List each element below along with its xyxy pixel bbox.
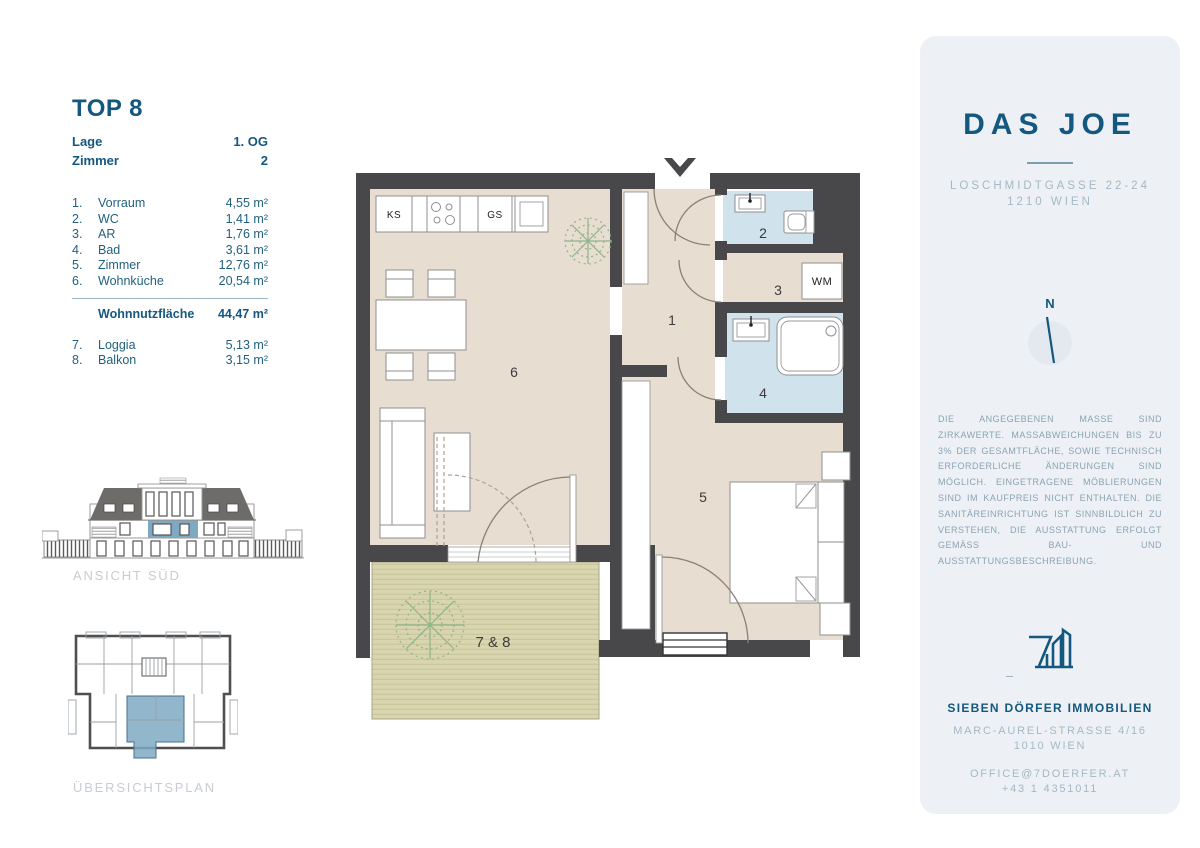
compass-needle-icon xyxy=(1020,309,1080,371)
room-row: 8. Balkon 3,15 m² xyxy=(72,353,268,369)
title-divider xyxy=(1027,162,1073,164)
room-label-zimmer: 5 xyxy=(699,489,707,505)
room-no: 1. xyxy=(72,196,98,212)
logo-dash xyxy=(1006,676,1013,677)
room-name: Loggia xyxy=(98,338,226,354)
coffee-table xyxy=(434,433,470,511)
room-name: Zimmer xyxy=(98,258,219,274)
room-name: Wohnküche xyxy=(98,274,219,290)
cooktop xyxy=(427,196,460,232)
dishwasher-label: GS xyxy=(487,210,502,221)
room-row: 7. Loggia 5,13 m² xyxy=(72,338,268,354)
meta-zimmer-value: 2 xyxy=(261,151,268,170)
terrace-label: 7 & 8 xyxy=(475,634,510,651)
room-row: 3. AR 1,76 m² xyxy=(72,227,268,243)
room-row: 6. Wohnküche 20,54 m² xyxy=(72,274,268,290)
pocket-door-lower xyxy=(622,381,650,629)
fridge-label: KS xyxy=(387,210,401,221)
room-area: 3,61 m² xyxy=(226,243,268,259)
room-area: 12,76 m² xyxy=(219,258,268,274)
company-email: OFFICE@7DOERFER.AT xyxy=(920,767,1180,782)
project-address-line2: 1210 WIEN xyxy=(920,194,1180,210)
total-row: Wohnnutzfläche 44,47 m² xyxy=(72,306,268,323)
company-address-line2: 1010 WIEN xyxy=(920,739,1180,754)
room-label-ar: 3 xyxy=(774,282,782,298)
overview-drawing xyxy=(68,630,238,772)
company-address-line1: MARC-AUREL-STRASSE 4/16 xyxy=(920,724,1180,739)
room-area: 3,15 m² xyxy=(226,353,268,369)
room-area: 1,41 m² xyxy=(226,212,268,228)
room-name: Vorraum xyxy=(98,196,226,212)
room-no: 8. xyxy=(72,353,98,369)
outdoor-list: 7. Loggia 5,13 m² 8. Balkon 3,15 m² xyxy=(72,338,268,369)
elevation-left-wing xyxy=(44,540,90,557)
brochure-page: TOP 8 Lage 1. OG Zimmer 2 1. Vorraum 4,5… xyxy=(0,0,1200,848)
list-divider xyxy=(72,298,268,299)
total-label: Wohnnutzfläche xyxy=(98,306,218,323)
project-title: DAS JOE xyxy=(920,108,1180,142)
total-value: 44,47 m² xyxy=(218,306,268,323)
wardrobe xyxy=(820,603,850,635)
pocket-door-upper xyxy=(624,192,648,284)
room-name: Bad xyxy=(98,243,226,259)
room-row: 5. Zimmer 12,76 m² xyxy=(72,258,268,274)
company-logo xyxy=(920,622,1180,672)
room-area: 20,54 m² xyxy=(219,274,268,290)
unit-info: TOP 8 Lage 1. OG Zimmer 2 1. Vorraum 4,5… xyxy=(72,96,268,369)
seven-doerfer-logo-icon xyxy=(1023,624,1077,670)
sofa xyxy=(380,408,425,538)
room-label-wc: 2 xyxy=(759,225,767,241)
room-label-wohnkueche: 6 xyxy=(510,364,518,380)
disclaimer-text: DIE ANGEGEBENEN MASSE SIND ZIRKAWERTE. M… xyxy=(938,412,1162,570)
project-address: LOSCHMIDTGASSE 22-24 1210 WIEN xyxy=(920,178,1180,210)
elevation-right-wing xyxy=(254,540,302,557)
project-address-line1: LOSCHMIDTGASSE 22-24 xyxy=(920,178,1180,194)
room-name: Balkon xyxy=(98,353,226,369)
wardrobe xyxy=(822,452,850,480)
company-contact: OFFICE@7DOERFER.AT +43 1 4351011 xyxy=(920,767,1180,797)
room-label-bad: 4 xyxy=(759,385,767,401)
meta-zimmer-label: Zimmer xyxy=(72,151,119,170)
kitchen-counter: KS GS xyxy=(376,196,548,232)
entrance-arrow-icon xyxy=(664,158,696,177)
company-name: SIEBEN DÖRFER IMMOBILIEN xyxy=(920,701,1180,715)
room-no: 4. xyxy=(72,243,98,259)
plant-icon xyxy=(396,591,464,659)
room-no: 7. xyxy=(72,338,98,354)
room-no: 6. xyxy=(72,274,98,290)
washing-machine-label: WM xyxy=(812,276,833,288)
bedroom-window xyxy=(663,633,727,655)
washing-machine: WM xyxy=(802,263,842,299)
room-label-vorraum: 1 xyxy=(668,312,676,328)
meta-lage-label: Lage xyxy=(72,132,102,151)
compass: N xyxy=(920,296,1180,376)
room-no: 5. xyxy=(72,258,98,274)
room-area: 4,55 m² xyxy=(226,196,268,212)
elevation-label: ANSICHT SÜD xyxy=(73,568,181,583)
elevation-eg-windows xyxy=(97,541,248,556)
room-row: 1. Vorraum 4,55 m² xyxy=(72,196,268,212)
overview-label: ÜBERSICHTSPLAN xyxy=(73,780,216,795)
room-name: WC xyxy=(98,212,226,228)
company-address: MARC-AUREL-STRASSE 4/16 1010 WIEN xyxy=(920,724,1180,754)
meta-zimmer: Zimmer 2 xyxy=(72,151,268,170)
meta-lage: Lage 1. OG xyxy=(72,132,268,151)
room-row: 4. Bad 3,61 m² xyxy=(72,243,268,259)
room-list: 1. Vorraum 4,55 m² 2. WC 1,41 m² 3. AR 1… xyxy=(72,196,268,290)
company-phone: +43 1 4351011 xyxy=(920,782,1180,797)
bed xyxy=(730,482,844,603)
room-area: 5,13 m² xyxy=(226,338,268,354)
project-panel: DAS JOE LOSCHMIDTGASSE 22-24 1210 WIEN N… xyxy=(920,36,1180,814)
dining-table xyxy=(376,300,466,350)
room-no: 3. xyxy=(72,227,98,243)
room-row: 2. WC 1,41 m² xyxy=(72,212,268,228)
room-no: 2. xyxy=(72,212,98,228)
room-area: 1,76 m² xyxy=(226,227,268,243)
room-name: AR xyxy=(98,227,226,243)
floor-plan: KS GS xyxy=(350,145,875,730)
elevation-drawing xyxy=(42,470,304,562)
unit-title: TOP 8 xyxy=(72,96,268,122)
meta-lage-value: 1. OG xyxy=(233,132,268,151)
overview-stair-core xyxy=(142,658,166,676)
